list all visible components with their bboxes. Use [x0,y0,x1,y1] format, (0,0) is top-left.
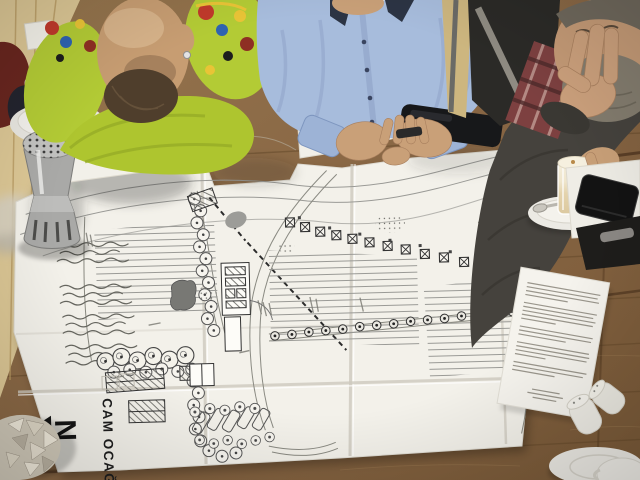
photo-canvas: N CAM OCAĞI [0,0,640,480]
photo-scene: N CAM OCAĞI [0,0,640,480]
vignette-overlay [0,0,640,480]
